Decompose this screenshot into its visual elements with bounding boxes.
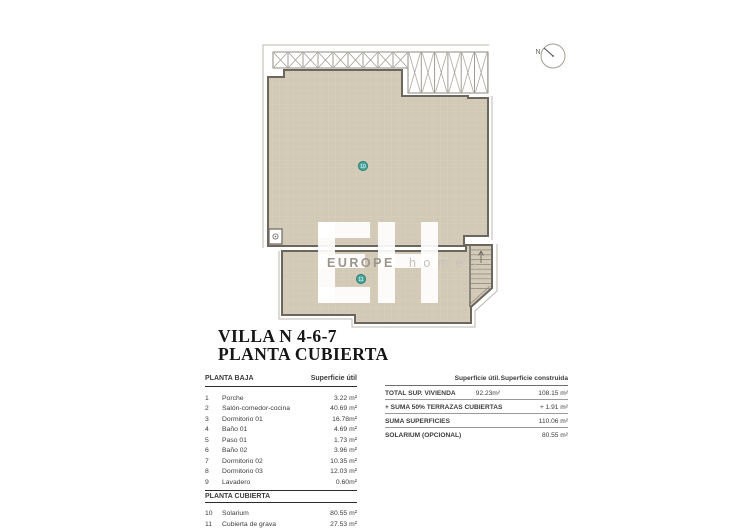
table-row: 1Porche3.22 m² [205,393,357,404]
row-name: Porche [222,395,334,402]
row-number: 1 [205,395,222,402]
gravel-marker: 11 [357,275,366,284]
table-row: 4Baño 014.69 m² [205,425,357,436]
row-value: 16.78m² [332,416,357,423]
row-name: Dormitorio 02 [222,458,330,465]
row-name: Paso 01 [222,437,334,444]
row-name: Salón-comedor-cocina [222,405,330,412]
row-name: Lavadero [222,479,336,486]
title-line-1: VILLA N 4-6-7 [218,327,389,345]
row-number: 10 [205,510,222,517]
floor-plan-svg: EUROPE h o m e s 10 11 N [0,0,756,528]
row-built-value: 108.15 m² [538,390,568,397]
row-name: Cubierta de grava [222,521,330,528]
row-built-value: + 1.91 m² [540,404,568,411]
row-value: 10.35 m² [330,458,357,465]
planta-cubierta-header: PLANTA CUBIERTA [205,490,357,503]
table-row: 9Lavadero0.60m² [205,477,357,488]
floorplan-sheet: EUROPE h o m e s 10 11 N VILLA N 4-6-7 P… [0,0,756,528]
row-label: SOLARIUM (OPCIONAL) [385,432,461,439]
row-name: Solarium [222,510,330,517]
row-number: 9 [205,479,222,486]
row-number: 3 [205,416,222,423]
row-number: 7 [205,458,222,465]
superficie-util-header: Superficie útil. [455,375,500,382]
row-number: 6 [205,447,222,454]
row-label: SUMA SUPERFICIES [385,418,450,425]
table-row: 8Dormitorio 0312.03 m² [205,467,357,478]
row-number: 2 [205,405,222,412]
table-row: 11Cubierta de grava27.53 m² [205,519,357,528]
row-number: 8 [205,468,222,475]
north-compass: N [535,44,565,68]
title-line-2: PLANTA CUBIERTA [218,345,389,363]
drain-symbol [269,229,282,244]
row-name: Baño 02 [222,447,334,454]
table-row: TOTAL SUP. VIVIENDA 92.23m² 108.15 m² [385,386,568,400]
table-row: 10Solarium80.55 m² [205,509,357,520]
row-built-value: 110.06 m² [539,418,568,425]
row-label: TOTAL SUP. VIVIENDA [385,390,456,397]
solarium-area [268,70,488,246]
table-row: + SUMA 50% TERRAZAS CUBIERTAS + 1.91 m² [385,400,568,414]
solarium-marker: 10 [359,162,368,171]
row-value: 80.55 m² [330,510,357,517]
north-label: N [535,49,540,56]
row-util-value: 92.23m² [476,390,500,397]
table-row: 6Baño 023.96 m² [205,446,357,457]
page-title: VILLA N 4-6-7 PLANTA CUBIERTA [218,327,389,363]
table-row: 5Paso 011.73 m² [205,435,357,446]
table-row: 2Salón-comedor-cocina40.69 m² [205,404,357,415]
row-value: 27.53 m² [330,521,357,528]
planta-baja-title: PLANTA BAJA [205,375,254,382]
row-name: Dormitorio 01 [222,416,332,423]
row-name: Dormitorio 03 [222,468,330,475]
gravel-marker-number: 11 [358,277,363,283]
row-value: 0.60m² [336,479,357,486]
row-number: 11 [205,521,222,528]
areas-table-planta-baja: PLANTA BAJA Superficie útil 1Porche3.22 … [205,372,357,528]
table-row: SUMA SUPERFICIES 110.06 m² [385,414,568,428]
row-value: 3.96 m² [334,447,357,454]
row-value: 3.22 m² [334,395,357,402]
row-label: + SUMA 50% TERRAZAS CUBIERTAS [385,404,502,411]
row-value: 1.73 m² [334,437,357,444]
table-row: 3Dormitorio 0116.78m² [205,414,357,425]
row-built-value: 80.55 m² [542,432,568,439]
row-value: 12.03 m² [330,468,357,475]
row-name: Baño 01 [222,426,334,433]
row-number: 5 [205,437,222,444]
superficie-util-col-header: Superficie útil [311,375,357,382]
pergola-strip-left [273,52,408,68]
row-number: 4 [205,426,222,433]
row-value: 4.69 m² [334,426,357,433]
watermark-brand-bold: EUROPE [327,256,395,270]
solarium-marker-number: 10 [360,164,366,170]
totals-table: Superficie útil. Superficie construida T… [385,372,568,443]
watermark-brand-light: h o m e s [409,256,478,270]
totals-table-header: Superficie útil. Superficie construida [385,372,568,386]
row-value: 40.69 m² [330,405,357,412]
table-row: 7Dormitorio 0210.35 m² [205,456,357,467]
planta-baja-header: PLANTA BAJA Superficie útil [205,372,357,387]
superficie-construida-header: Superficie construida [501,375,568,382]
pergola-strip-right [408,52,488,93]
table-row: SOLARIUM (OPCIONAL) 80.55 m² [385,428,568,443]
